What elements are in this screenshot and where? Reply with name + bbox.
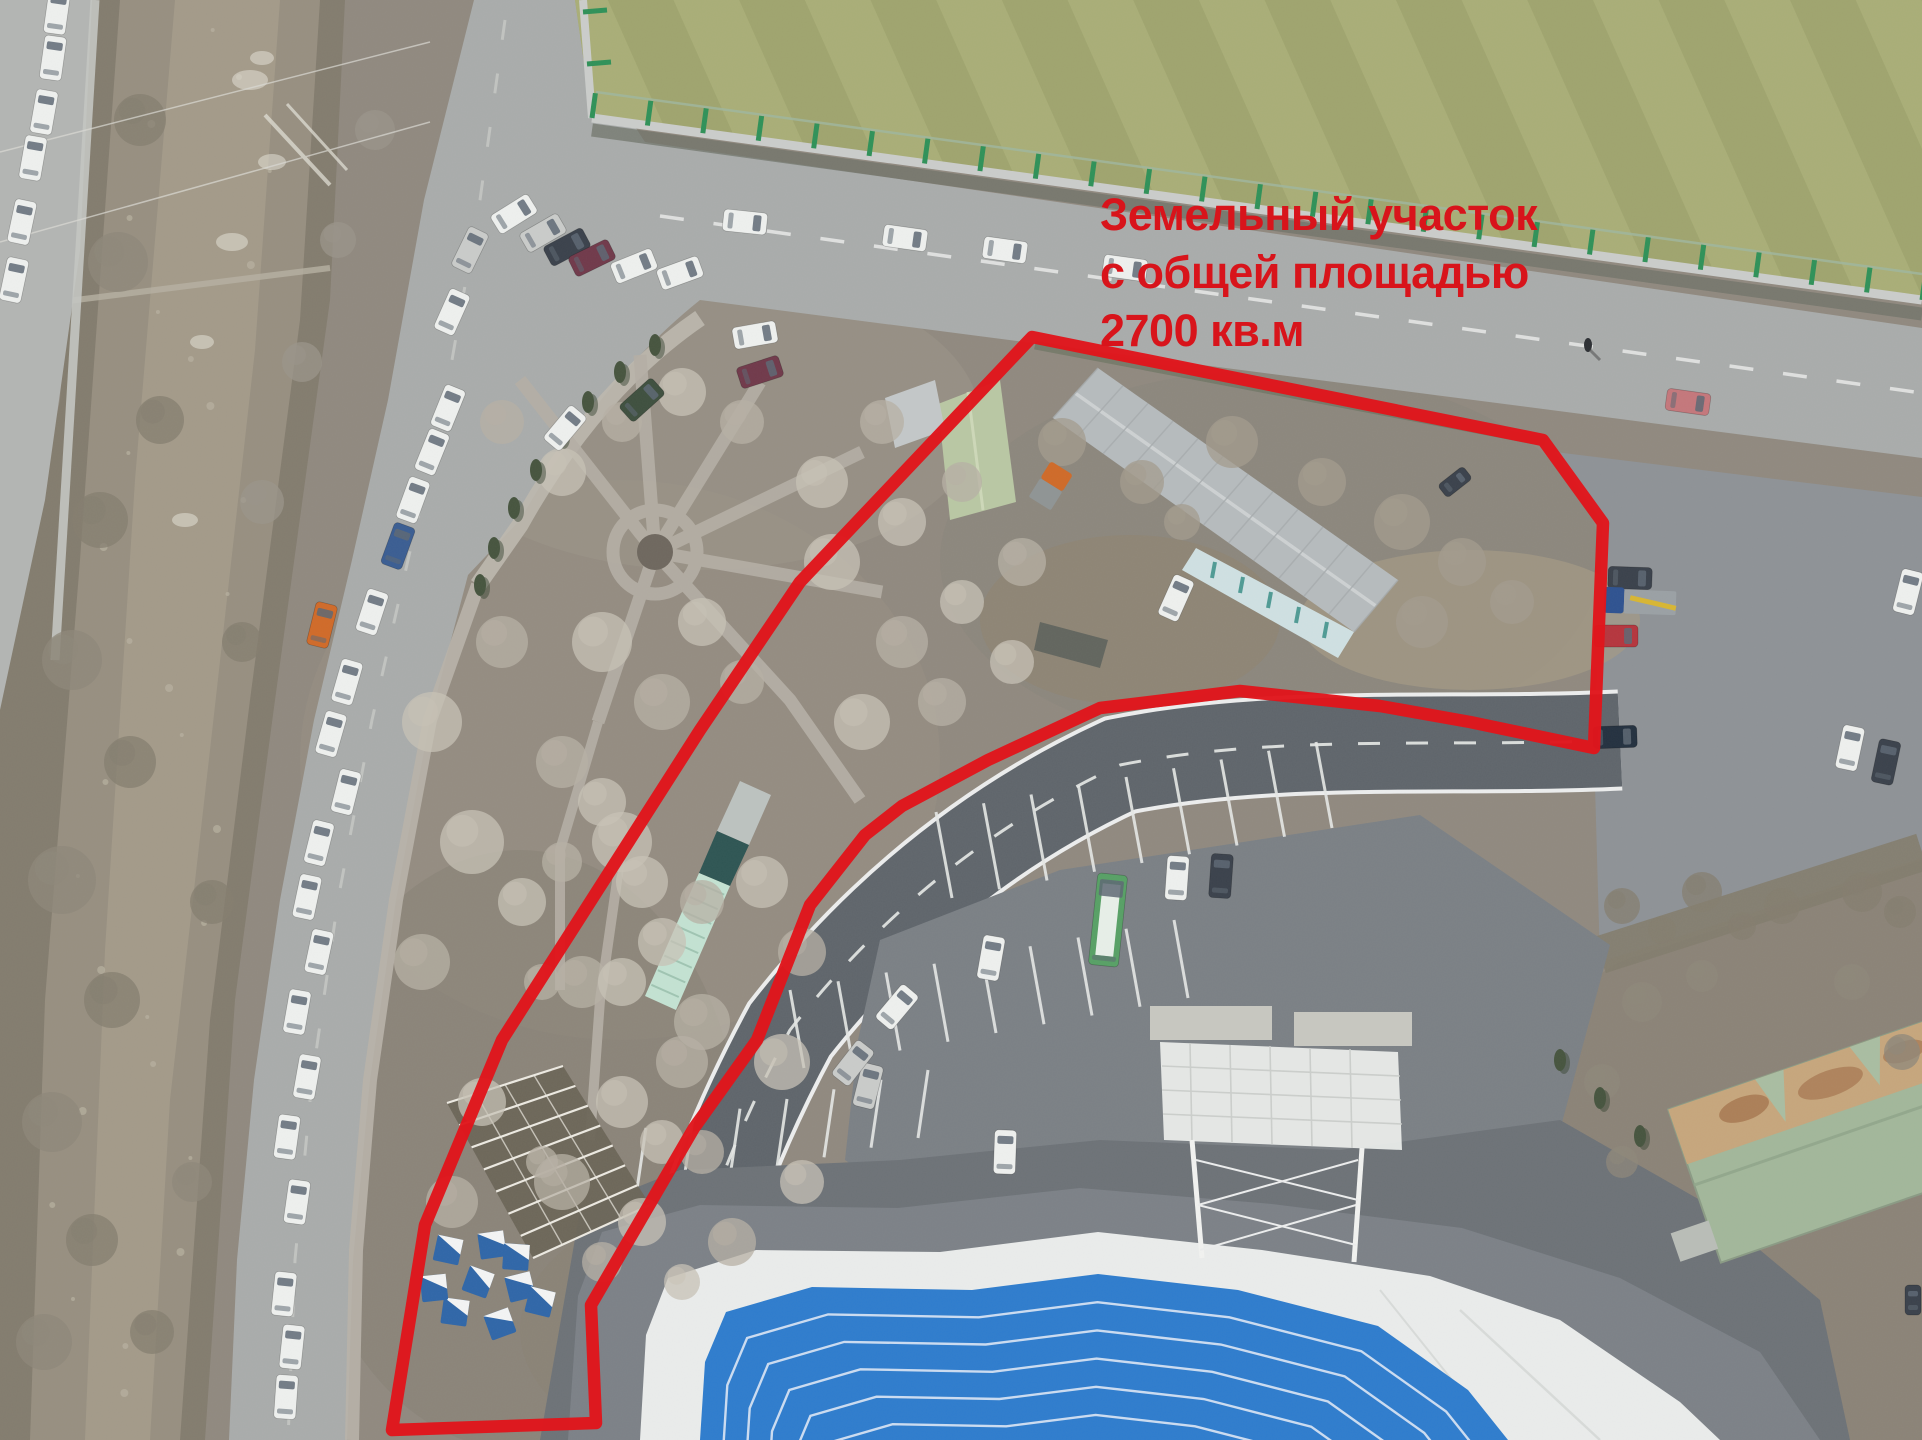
- annotation-line-3: 2700 кв.м: [1100, 305, 1304, 356]
- aerial-photo-canvas: Земельный участок с общей площадью 2700 …: [0, 0, 1922, 1440]
- photo-grain: [0, 0, 1922, 1440]
- annotation-line-1: Земельный участок: [1100, 189, 1538, 240]
- aerial-photo: Земельный участок с общей площадью 2700 …: [0, 0, 1922, 1440]
- annotation-line-2: с общей площадью: [1100, 247, 1529, 298]
